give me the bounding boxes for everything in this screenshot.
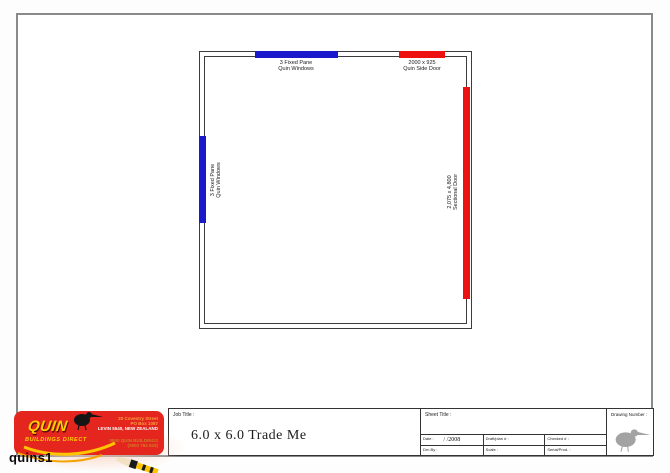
brand-wordmark: QUIN xyxy=(27,418,69,435)
kiwi-watermark-icon xyxy=(611,425,651,453)
phone-line2: (0800 784 628) xyxy=(109,443,158,448)
right-door-label: 2,075 x 4,800 Sectional Door xyxy=(447,174,459,210)
floor-plan-inner-wall xyxy=(204,56,467,324)
brush-icon xyxy=(116,455,159,473)
drawn-by-label: Drn By : xyxy=(423,447,437,452)
field-date: Date : / /2008 xyxy=(421,434,483,445)
top-window-label: 3 Fixed Pane Quin Windows xyxy=(278,60,313,72)
top-side-door-segment xyxy=(399,51,445,58)
field-drawn-by: Drn By : xyxy=(421,445,483,456)
field-serial: Serial/Prod. : xyxy=(544,445,606,456)
logo-phone: 0800 QUIN BUILDINGS (0800 784 628) xyxy=(109,438,158,448)
drawing-number-box: Drawing Number : xyxy=(606,408,654,456)
left-window-segment xyxy=(199,136,206,223)
field-plan-no: Draft/plan # : xyxy=(483,434,545,445)
floor-plan xyxy=(199,51,472,329)
plan-no-label: Draft/plan # : xyxy=(486,436,509,441)
drawing-sheet: 3 Fixed Pane Quin Windows 2000 x 925 Qui… xyxy=(0,0,670,473)
scale-label: Scale : xyxy=(486,447,498,452)
left-window-label: 3 Fixed Pane Quin Windows xyxy=(210,162,222,197)
field-checked: Checked # : xyxy=(544,434,606,445)
date-value: / /2008 xyxy=(421,437,483,443)
drawing-number-label: Drawing Number : xyxy=(611,412,647,417)
logo-address: 20 Coventry Street PO Box 1087 LEVIN 554… xyxy=(98,416,158,432)
top-door-label-line2: Quin Side Door xyxy=(403,66,441,72)
job-title-value: 6.0 x 6.0 Trade Me xyxy=(191,428,307,444)
top-window-segment xyxy=(255,51,338,58)
job-title-box: Job Title : 6.0 x 6.0 Trade Me xyxy=(168,408,421,456)
address-line3: LEVIN 5540, NEW ZEALAND xyxy=(98,426,158,431)
top-window-label-line2: Quin Windows xyxy=(278,66,313,72)
left-window-label-line2: Quin Windows xyxy=(216,162,222,197)
brand-subtitle: BUILDINGS DIRECT xyxy=(25,437,87,443)
sheet-title-box: Sheet Title : Date : / /2008 Draft/plan … xyxy=(420,408,607,456)
image-caption: quins1 xyxy=(9,450,53,465)
sheet-fields-grid: Date : / /2008 Draft/plan # : Checked # … xyxy=(421,434,606,455)
field-scale: Scale : xyxy=(483,445,545,456)
checked-label: Checked # : xyxy=(547,436,568,441)
serial-label: Serial/Prod. : xyxy=(547,447,570,452)
right-door-label-line2: Sectional Door xyxy=(453,174,459,210)
right-sectional-door-segment xyxy=(463,87,470,299)
quin-logo-block: QUIN BUILDINGS DIRECT 20 Coventry Street… xyxy=(14,411,164,455)
sheet-title-label: Sheet Title : xyxy=(425,412,451,418)
top-door-label: 2000 x 925 Quin Side Door xyxy=(403,60,441,72)
